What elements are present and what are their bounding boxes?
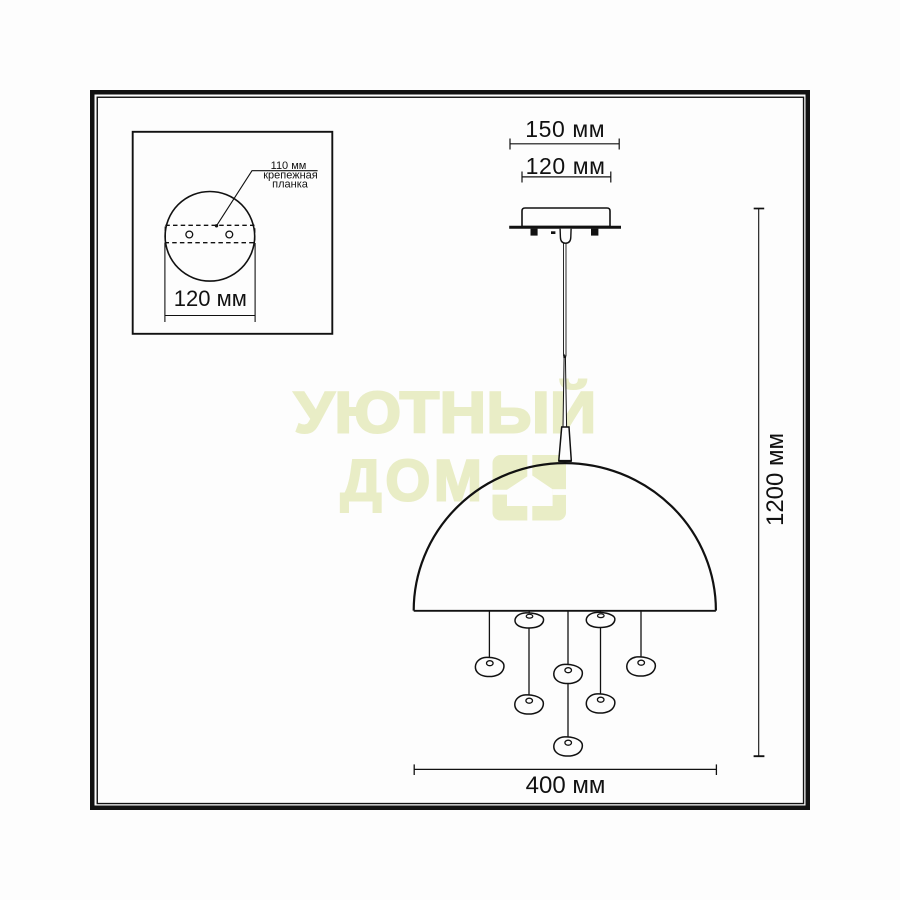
svg-text:УЮТНЫЙ: УЮТНЫЙ <box>294 380 597 446</box>
svg-text:120 мм: 120 мм <box>174 286 247 311</box>
svg-text:400 мм: 400 мм <box>526 772 606 799</box>
svg-text:ДОМ: ДОМ <box>340 449 485 514</box>
svg-text:планка: планка <box>272 179 309 191</box>
svg-text:120 мм: 120 мм <box>526 153 606 179</box>
svg-text:150 мм: 150 мм <box>525 116 605 142</box>
svg-text:1200 мм: 1200 мм <box>762 433 789 526</box>
